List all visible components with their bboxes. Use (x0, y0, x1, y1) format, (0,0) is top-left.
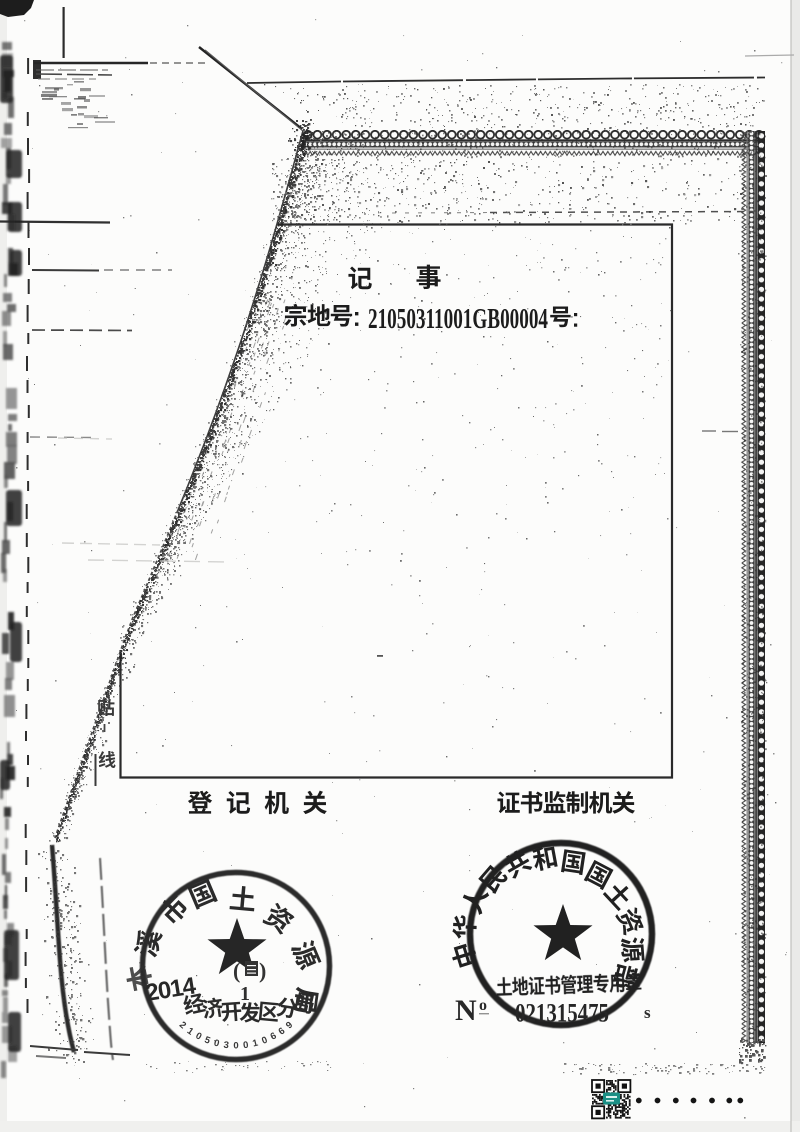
svg-text:1: 1 (240, 983, 250, 1005)
svg-text:021315475: 021315475 (515, 999, 609, 1028)
svg-text:o: o (479, 997, 487, 1014)
svg-text:): ) (259, 958, 266, 983)
svg-text:s: s (644, 1003, 651, 1022)
svg-text:21050311001GB00004: 21050311001GB00004 (368, 304, 548, 335)
svg-text:0: 0 (233, 1041, 238, 1052)
svg-text:(: ( (233, 958, 240, 983)
svg-text:N: N (455, 994, 477, 1027)
